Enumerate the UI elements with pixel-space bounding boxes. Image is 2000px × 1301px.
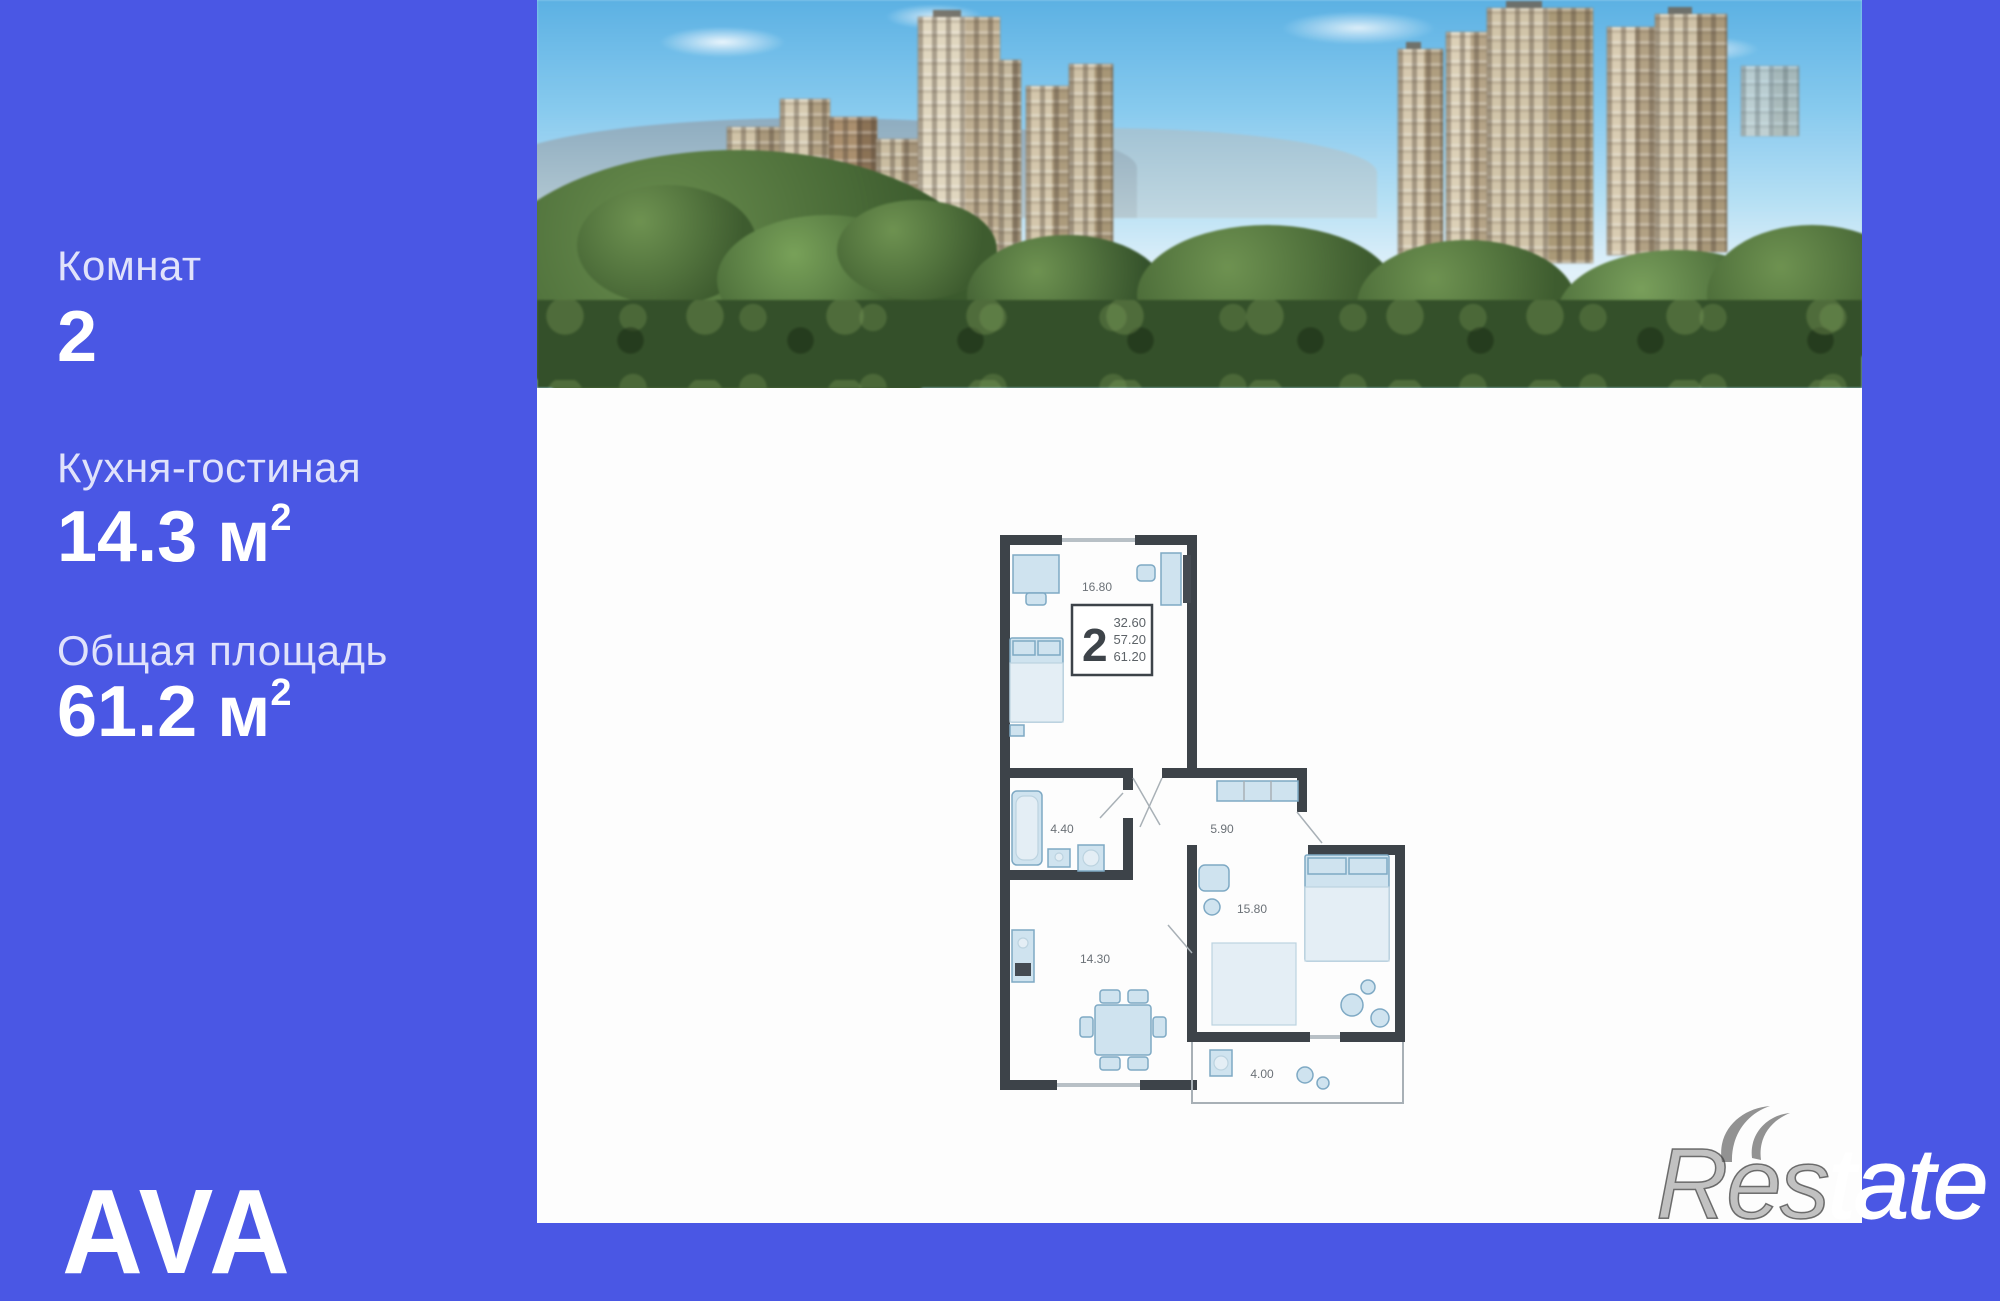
- plan-living-area: 32.60: [1113, 615, 1146, 630]
- tower-11-slab: [1487, 8, 1593, 263]
- total-area-value-number: 61.2: [57, 672, 197, 752]
- floor-plan: 2 32.60 57.20 61.20 16.80 4.40 5.90 15.8…: [1000, 535, 1405, 1113]
- rooms-value: 2: [57, 301, 97, 373]
- restate-watermark: Restate: [1656, 1134, 1987, 1234]
- total-area-value: 61.2 м2: [57, 676, 292, 748]
- building-photo-render: [537, 0, 1862, 388]
- kitchen-living-value: 14.3 м2: [57, 501, 292, 573]
- total-area-unit: м: [217, 672, 270, 752]
- kitchen-living-furniture: [1012, 930, 1166, 1070]
- plan-area-no-balcony: 57.20: [1113, 632, 1146, 647]
- tower-10: [1446, 32, 1488, 260]
- tower-14-distant: [1741, 66, 1799, 136]
- tower-9: [1398, 49, 1443, 264]
- label-bedroom-1: 16.80: [1082, 580, 1112, 594]
- kitchen-living-value-number: 14.3: [57, 497, 197, 577]
- label-bedroom-2: 15.80: [1237, 902, 1267, 916]
- plan-total-area: 61.20: [1113, 649, 1146, 664]
- tower-13: [1655, 14, 1727, 252]
- bedroom-2-furniture: [1199, 855, 1389, 1027]
- hallway-wardrobe: [1217, 781, 1298, 801]
- sidebar: Комнат 2 Кухня-гостиная 14.3 м2 Общая пл…: [0, 0, 537, 1223]
- building-photo: [537, 0, 1862, 388]
- tower-12: [1607, 27, 1656, 255]
- watermark-tate: tate: [1828, 1128, 1987, 1240]
- forest-foreground: [537, 300, 1862, 388]
- plan-rooms-count: 2: [1082, 619, 1108, 671]
- label-hallway: 5.90: [1210, 822, 1234, 836]
- label-loggia: 4.00: [1250, 1067, 1274, 1081]
- rooms-label: Комнат: [57, 242, 202, 290]
- label-kitchen-living: 14.30: [1080, 952, 1110, 966]
- total-area-unit-sup: 2: [270, 672, 291, 714]
- watermark-res: Res: [1656, 1128, 1828, 1240]
- rooms-value-number: 2: [57, 297, 97, 377]
- kitchen-living-label: Кухня-гостиная: [57, 444, 361, 492]
- content-panel: 2 32.60 57.20 61.20 16.80 4.40 5.90 15.8…: [537, 0, 1862, 1223]
- ava-logo: AVA: [62, 1162, 294, 1301]
- plan-info-box: 2 32.60 57.20 61.20: [1072, 605, 1152, 675]
- total-area-label: Общая площадь: [57, 627, 388, 675]
- label-bathroom: 4.40: [1050, 822, 1074, 836]
- kitchen-living-unit: м: [217, 497, 270, 577]
- kitchen-living-unit-sup: 2: [270, 497, 291, 539]
